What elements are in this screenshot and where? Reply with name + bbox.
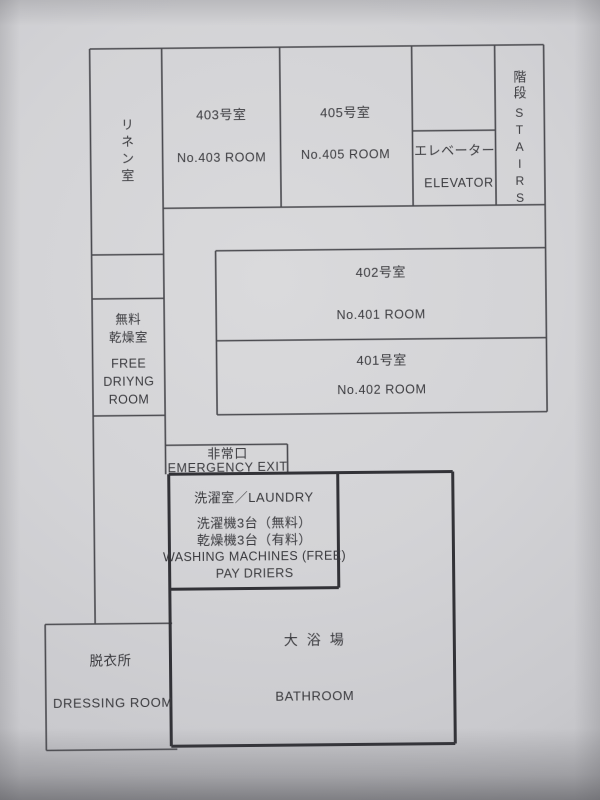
- label-room-401-en: No.402 ROOM: [337, 384, 426, 397]
- label-drying-jp-1: 無料: [103, 310, 154, 328]
- label-laundry-jp-2: 乾燥機3台（有料）: [163, 531, 346, 549]
- label-room-402-jp: 402号室: [356, 265, 406, 278]
- label-room-405-en: No.405 ROOM: [301, 148, 390, 161]
- photo-shadow-bottom: [0, 728, 600, 800]
- label-laundry-details: 洗濯機3台（無料） 乾燥機3台（有料） WASHING MACHINES (FR…: [163, 515, 347, 583]
- label-laundry-en-1: WASHING MACHINES (FREE): [163, 548, 346, 566]
- label-room-403-jp: 403号室: [196, 108, 246, 121]
- photo-shadow-right: [574, 0, 600, 800]
- label-room-405-jp: 405号室: [320, 106, 370, 119]
- label-emergency-exit-jp: 非常口: [207, 447, 248, 460]
- label-drying-en-1: FREE: [103, 354, 154, 372]
- label-laundry-en-2: PAY DRIERS: [163, 564, 346, 582]
- label-bath-jp: 大浴場: [284, 633, 353, 648]
- label-elevator-jp: エレベーター: [414, 144, 495, 158]
- label-dressing-en: DRESSING ROOM: [53, 696, 173, 710]
- label-room-401-jp: 401号室: [356, 353, 406, 366]
- label-drying-en-3: ROOM: [103, 390, 154, 408]
- label-dressing-jp: 脱衣所: [89, 654, 131, 668]
- label-drying-jp-2: 乾燥室: [103, 328, 154, 346]
- floor-plan-photo: リネン室 403号室 No.403 ROOM 405号室 No.405 ROOM…: [0, 0, 600, 800]
- label-elevator-en: ELEVATOR: [424, 177, 494, 190]
- label-stairs-en: STAIRS: [513, 106, 526, 208]
- label-laundry-title: 洗濯室／LAUNDRY: [194, 490, 314, 504]
- label-room-402-en: No.401 ROOM: [336, 309, 425, 322]
- label-drying-room: 無料 乾燥室 FREE DRIYNG ROOM: [103, 310, 155, 408]
- floor-plan-walls: [0, 0, 600, 800]
- label-emergency-exit-en: EMERGENCY EXIT: [168, 461, 288, 475]
- floor-plan: リネン室 403号室 No.403 ROOM 405号室 No.405 ROOM…: [0, 0, 600, 800]
- photo-shadow-top: [0, 0, 600, 26]
- label-linen-room: リネン室: [120, 118, 134, 186]
- label-room-403-en: No.403 ROOM: [177, 151, 266, 164]
- photo-shadow-left: [0, 0, 20, 800]
- label-drying-en-2: DRIYNG: [103, 372, 154, 390]
- label-laundry-jp-1: 洗濯機3台（無料）: [163, 515, 346, 533]
- label-stairs-jp: 階段: [512, 70, 525, 102]
- label-bath-en: BATHROOM: [275, 689, 354, 703]
